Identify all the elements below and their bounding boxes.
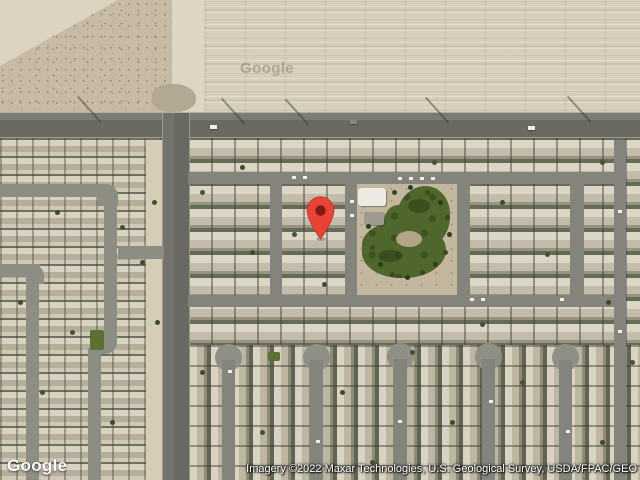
street-vertical — [559, 360, 572, 480]
parked-cars — [0, 0, 4, 3]
street — [104, 198, 117, 342]
park-tree-shade — [408, 199, 430, 213]
street — [88, 348, 101, 480]
vehicle — [350, 120, 357, 124]
pin-inner-dot — [315, 205, 325, 215]
attribution-text: Imagery ©2022 Maxar Technologies, U.S. G… — [246, 463, 637, 475]
street-vertical — [570, 172, 584, 307]
park-playground — [396, 231, 422, 247]
imagery-watermark: Google — [240, 60, 294, 77]
map-canvas[interactable]: Google — [0, 0, 640, 480]
main-road-vertical — [162, 113, 190, 480]
street-grid-north — [188, 172, 614, 184]
street-vertical — [270, 172, 282, 307]
street-vertical — [310, 360, 323, 480]
street-grid-south — [188, 295, 614, 307]
google-logo[interactable]: Google — [7, 456, 67, 476]
street-vertical — [345, 172, 357, 307]
gravel-patch — [152, 84, 196, 112]
street-vertical — [394, 359, 407, 480]
alley — [614, 140, 626, 480]
park-tree-shade — [378, 250, 402, 262]
lawn-patch — [90, 330, 104, 350]
park-building — [358, 188, 386, 206]
vehicle — [210, 125, 217, 129]
pin-body — [307, 197, 334, 239]
street-vertical — [482, 359, 495, 480]
vehicle — [528, 126, 535, 130]
street — [26, 280, 39, 480]
street-vertical — [222, 360, 235, 480]
lawn-patch — [268, 352, 280, 361]
street-vertical — [457, 172, 470, 307]
park-shelter — [364, 212, 384, 225]
street — [0, 184, 102, 197]
street-entrance — [118, 246, 164, 259]
map-pin[interactable] — [306, 196, 335, 241]
desert-terrain-right — [204, 0, 640, 113]
